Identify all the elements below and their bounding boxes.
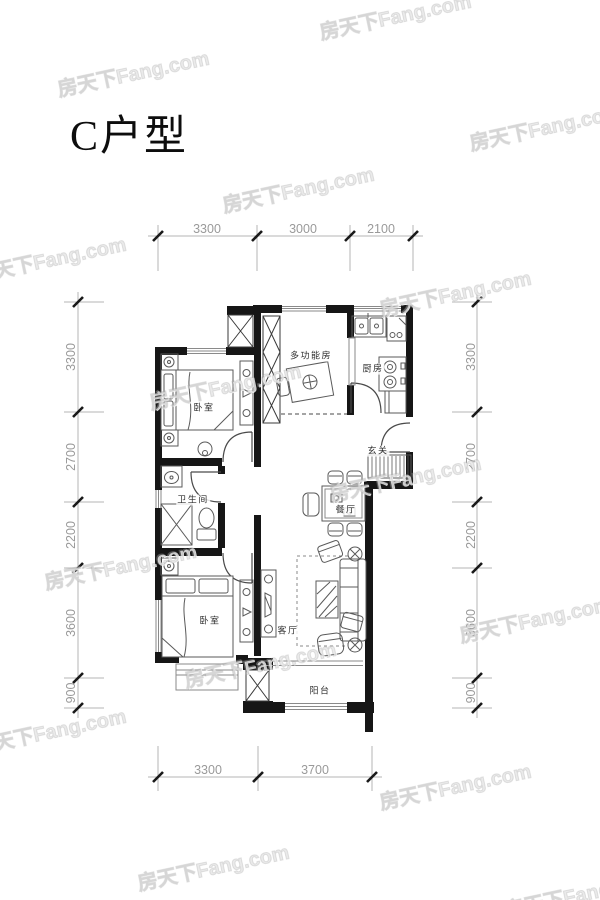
dim-label-left-1: 2700 [65,443,78,471]
dim-label-left-2: 2200 [65,521,78,549]
dim-label-left-0: 3300 [65,343,78,371]
dim-label-top-2: 2100 [367,223,395,236]
room-label-bedroom-1: 卧室 [192,403,215,414]
dimension-ticks [73,231,482,782]
dim-label-right-2: 2200 [465,521,478,549]
dining-furniture [303,471,365,536]
room-label-kitchen: 厨房 [361,364,384,375]
multifunction-room-furniture [275,362,334,405]
bedroom1-furniture [161,354,253,446]
room-label-multifunction-room: 多功能房 [289,351,333,362]
bedroom2-furniture [161,558,253,657]
dim-label-right-0: 3300 [465,343,478,371]
room-label-living-room: 客厅 [276,626,299,637]
living-room-furniture [261,540,366,657]
room-label-bedroom-2: 卧室 [198,616,221,627]
dim-label-bottom-0: 3300 [194,764,222,777]
dim-label-left-4: 900 [65,683,78,704]
dim-label-left-3: 3600 [65,609,78,637]
room-label-bathroom: 卫生间 [176,495,210,506]
dim-label-right-1: 2700 [465,443,478,471]
dim-label-right-3: 3600 [465,609,478,637]
entry-shoe-cabinet [368,455,411,478]
room-label-balcony: 阳台 [308,686,331,697]
bathroom-furniture [161,442,216,545]
dim-label-bottom-1: 3700 [301,764,329,777]
room-label-entry: 玄关 [366,446,389,457]
dim-label-right-4: 900 [465,683,478,704]
room-label-dining-room: 餐厅 [334,505,357,516]
dim-label-top-1: 3000 [289,223,317,236]
floorplan-page: C户型 [0,0,600,900]
floor-plan-drawing [0,0,600,900]
dim-label-top-0: 3300 [193,223,221,236]
